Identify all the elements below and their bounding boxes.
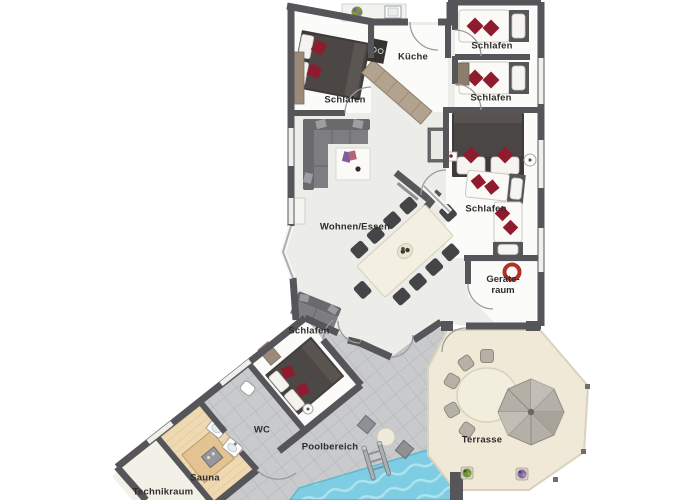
geraeteraum-line1: Geräte- [486, 274, 519, 285]
wall-block [441, 321, 453, 331]
room-label-wc: WC [254, 425, 270, 436]
single-bed-icon [459, 10, 529, 42]
cabinet-icon [293, 198, 305, 224]
room-label-geraeteraum: Geräte- raum [486, 274, 519, 296]
plant-icon [516, 468, 528, 480]
room-label-schlafen-top-right-1: Schlafen [471, 41, 512, 52]
geraeteraum-line2: raum [491, 285, 514, 296]
terrace-chair-icon [481, 350, 494, 363]
room-label-terrasse: Terrasse [462, 435, 503, 446]
room-label-wohnen-essen: Wohnen/Essen [320, 222, 390, 233]
room-label-schlafen-top-right-2: Schlafen [470, 93, 511, 104]
room-label-technikraum: Technikraum [133, 487, 194, 498]
sideboard-icon [293, 52, 304, 104]
parasol-icon [498, 379, 564, 445]
single-bed-icon [459, 62, 529, 94]
plant-icon [461, 467, 473, 479]
room-label-schlafen-top-left: Schlafen [324, 95, 365, 106]
wall-block [526, 321, 540, 331]
room-label-schlafen-bottom: Schlafen [288, 326, 329, 337]
terrace-post [581, 449, 586, 454]
room-label-poolbereich: Poolbereich [302, 442, 359, 453]
terrace-post [553, 477, 558, 482]
floorplan-stage: Schlafen Küche Schlafen Schlafen Schlafe… [0, 0, 700, 500]
double-bed-icon [452, 113, 524, 177]
room-label-schlafen-mid-right: Schlafen [465, 204, 506, 215]
terrace-post [585, 384, 590, 389]
coffee-table-icon [336, 148, 370, 180]
room-label-kueche: Küche [398, 52, 428, 63]
floorplan-drawing [0, 0, 700, 500]
room-label-sauna: Sauna [190, 473, 220, 484]
